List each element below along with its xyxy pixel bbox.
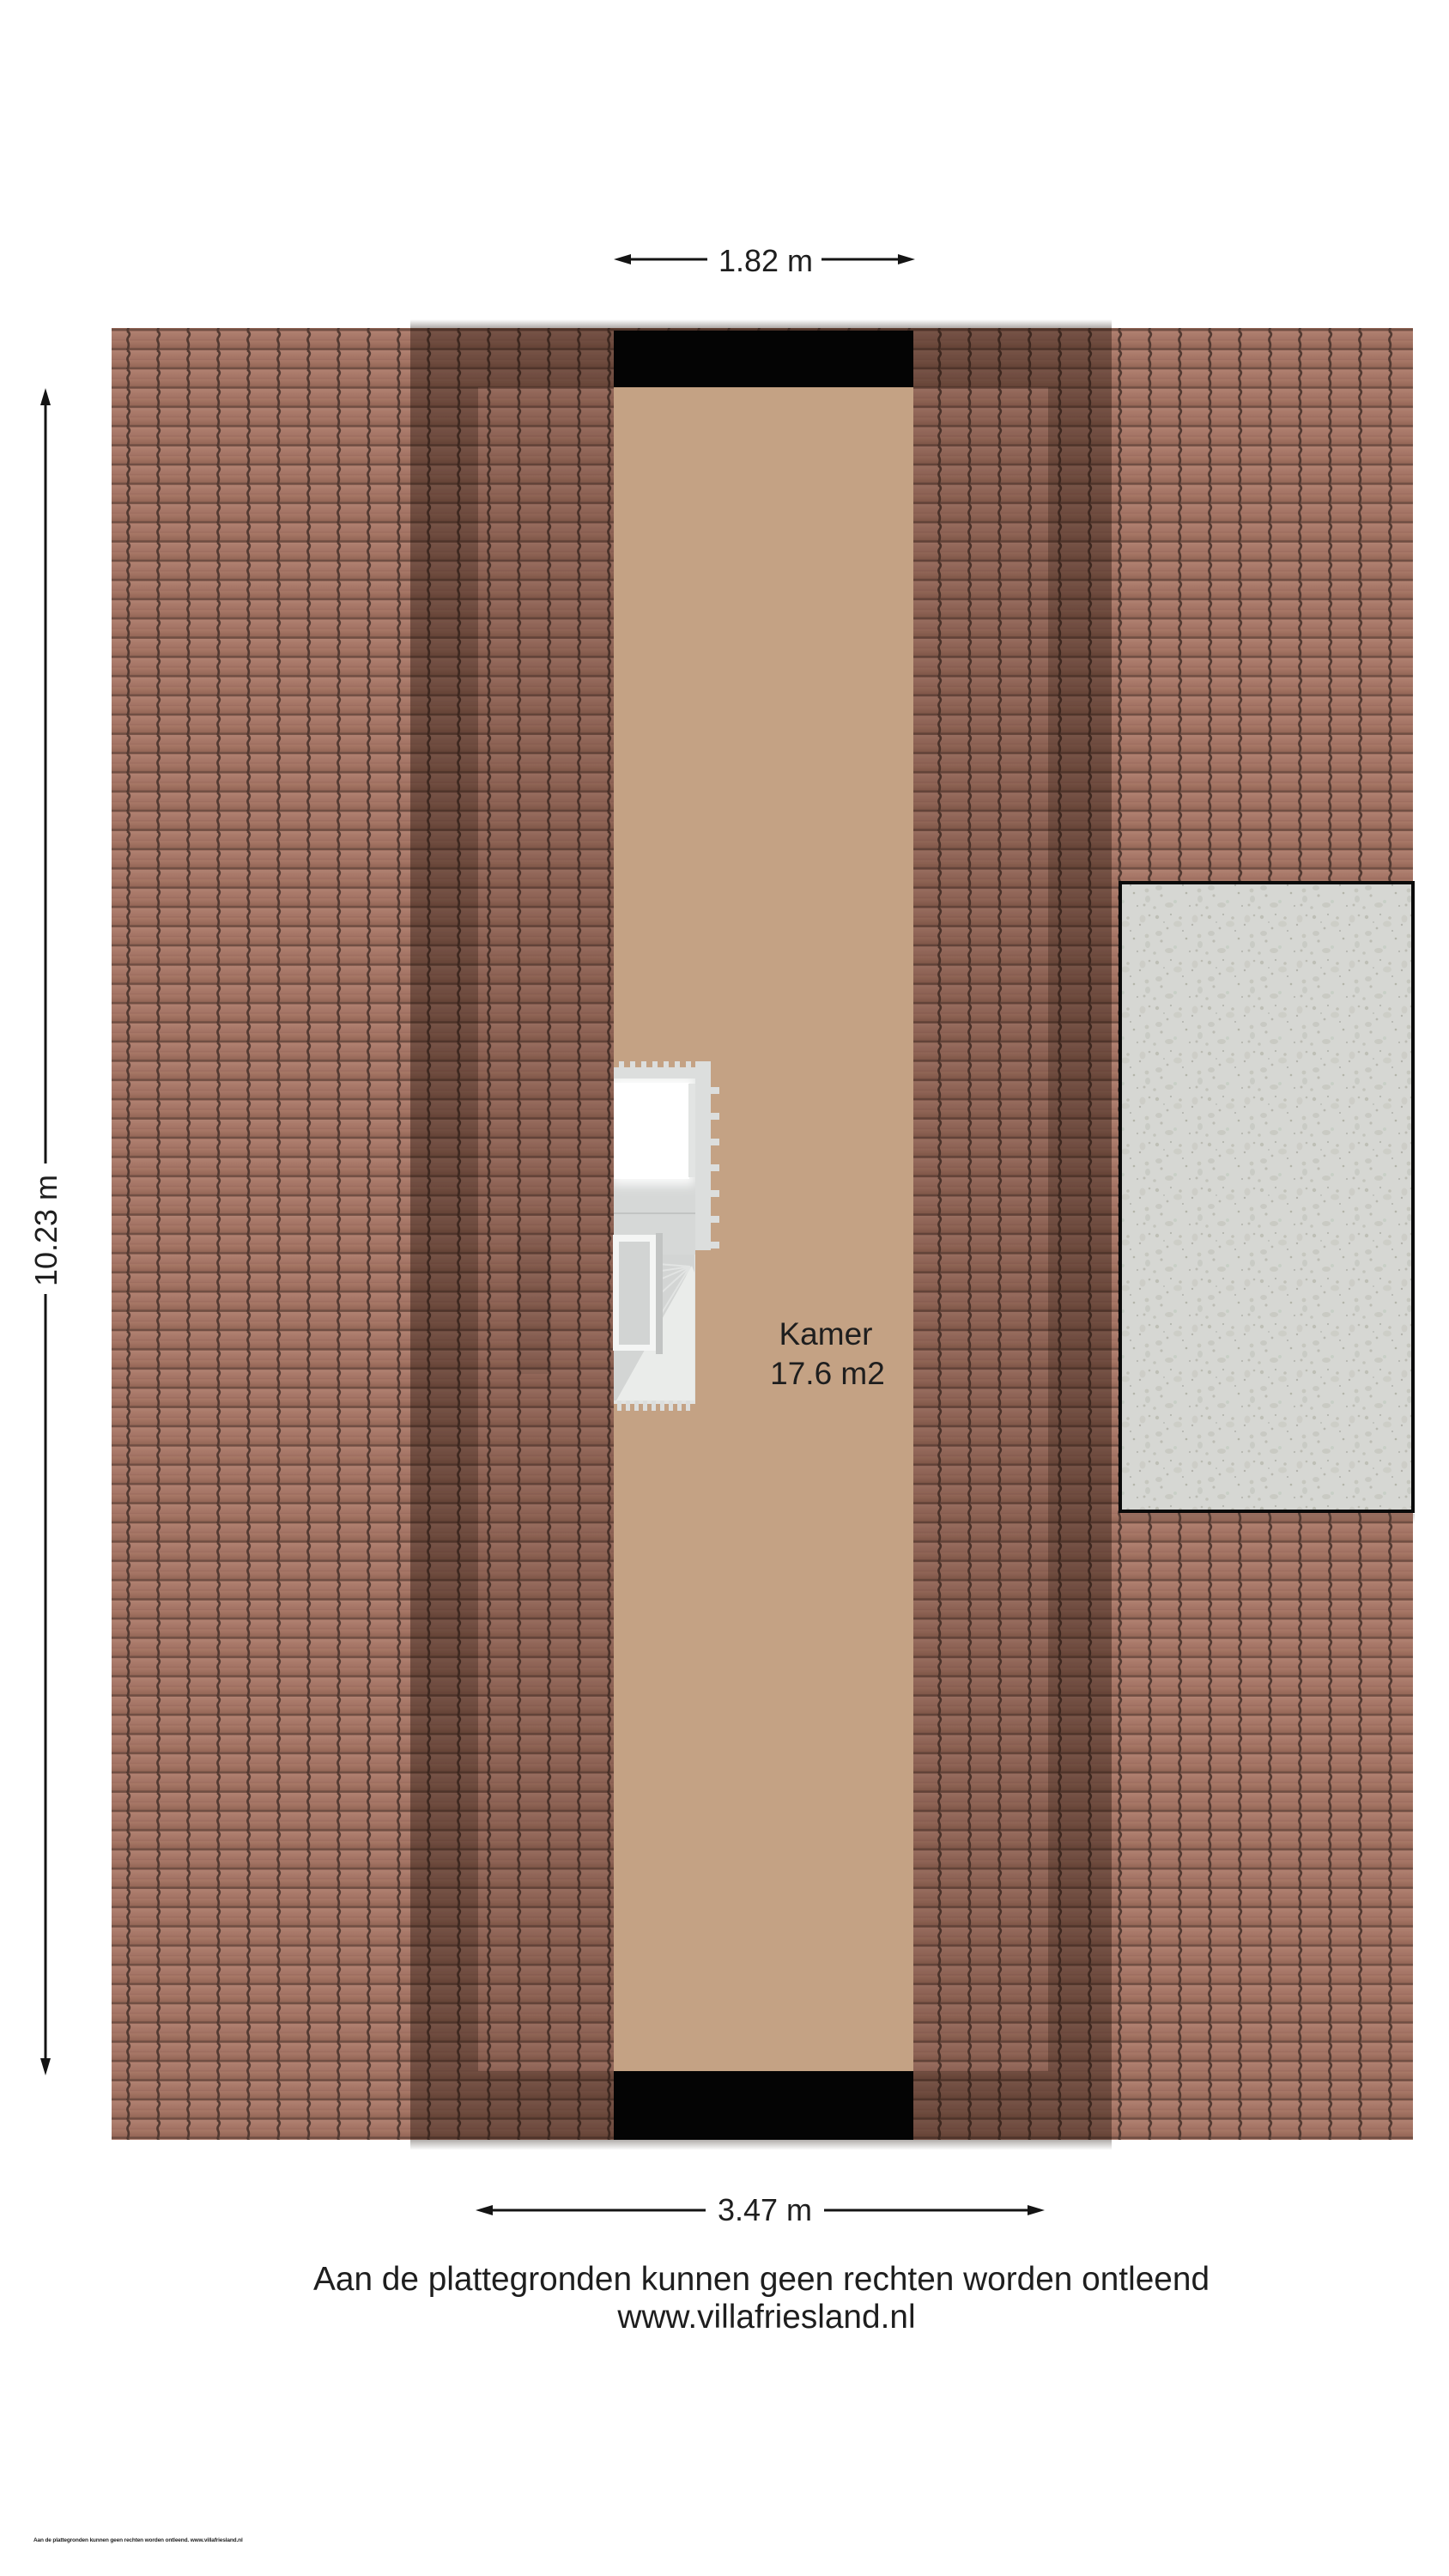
svg-text:Kamer: Kamer [779, 1316, 873, 1352]
svg-text:1.82 m: 1.82 m [718, 243, 813, 278]
svg-text:Aan de plattegronden kunnen ge: Aan de plattegronden kunnen geen rechten… [313, 2261, 1210, 2298]
svg-text:10.23 m: 10.23 m [28, 1175, 64, 1286]
svg-text:www.villafriesland.nl: www.villafriesland.nl [616, 2299, 915, 2336]
svg-text:3.47 m: 3.47 m [718, 2192, 812, 2227]
svg-text:17.6 m2: 17.6 m2 [770, 1356, 885, 1391]
svg-text:Aan de plattegronden kunnen ge: Aan de plattegronden kunnen geen rechten… [33, 2537, 243, 2543]
